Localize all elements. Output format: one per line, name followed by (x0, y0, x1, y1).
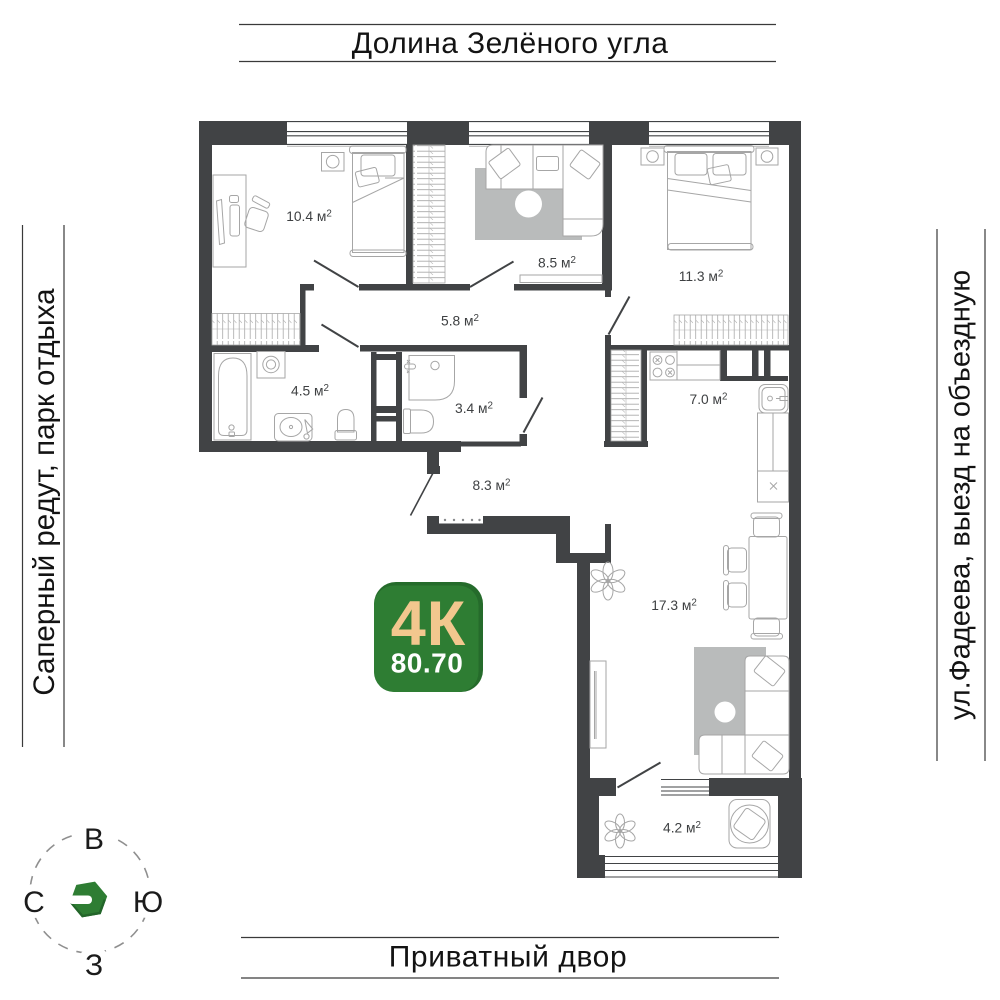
svg-text:С: С (23, 886, 45, 919)
svg-text:3.4 м2: 3.4 м2 (455, 401, 493, 417)
svg-text:4.5 м2: 4.5 м2 (291, 383, 329, 399)
svg-text:11.3 м2: 11.3 м2 (679, 269, 724, 285)
svg-text:4.2 м2: 4.2 м2 (663, 820, 701, 836)
svg-text:8.5 м2: 8.5 м2 (538, 255, 576, 271)
svg-text:Долина Зелёного угла: Долина Зелёного угла (352, 27, 669, 60)
svg-text:Саперный редут, парк отдыха: Саперный редут, парк отдыха (28, 288, 61, 696)
svg-text:В: В (84, 823, 104, 856)
svg-text:17.3 м2: 17.3 м2 (651, 598, 697, 614)
svg-text:ул.Фадеева, выезд на объездную: ул.Фадеева, выезд на объездную (945, 270, 977, 720)
svg-text:Приватный двор: Приватный двор (389, 941, 627, 974)
svg-text:7.0 м2: 7.0 м2 (690, 392, 728, 408)
svg-text:10.4 м2: 10.4 м2 (286, 209, 332, 225)
svg-text:80.70: 80.70 (391, 648, 464, 679)
svg-text:5.8 м2: 5.8 м2 (441, 313, 479, 329)
svg-text:З: З (85, 949, 103, 982)
svg-text:8.3 м2: 8.3 м2 (473, 478, 511, 494)
svg-text:Ю: Ю (133, 886, 163, 919)
